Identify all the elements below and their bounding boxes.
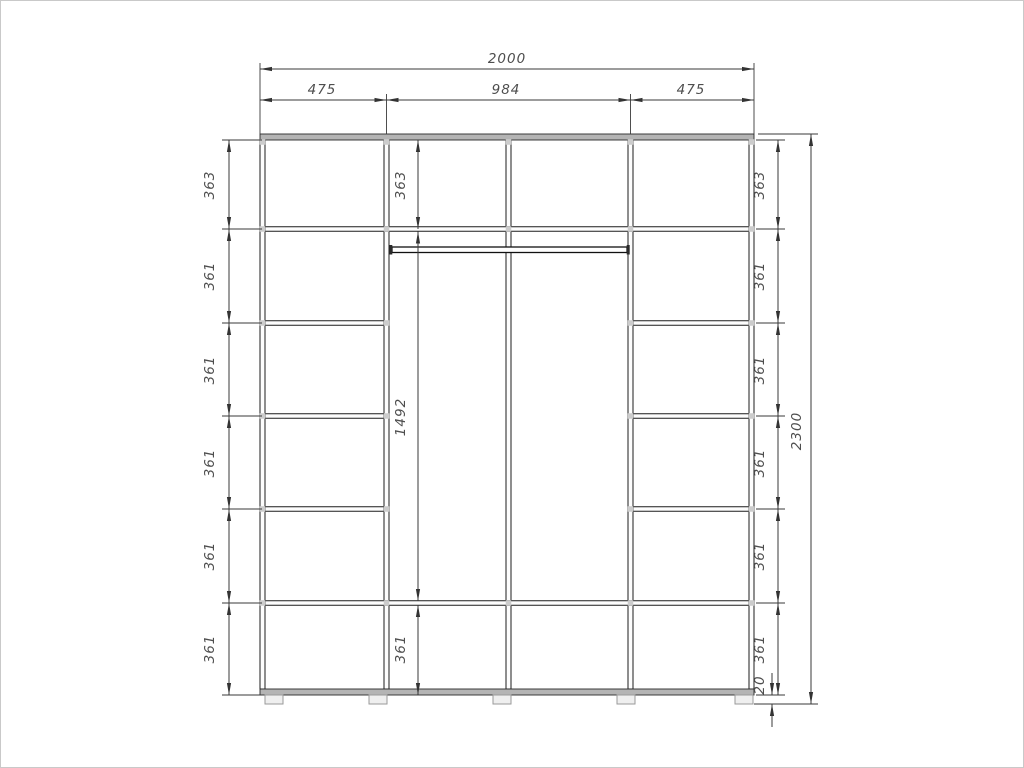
fitting-marker: [384, 506, 390, 512]
fitting-marker: [749, 320, 755, 326]
fitting-marker: [506, 226, 512, 232]
fitting-marker: [384, 320, 390, 326]
fitting-marker: [749, 226, 755, 232]
cabinet-body: [260, 134, 754, 704]
hanging-rod: [392, 247, 627, 253]
fitting-marker: [628, 413, 634, 419]
shelf-right-2: [633, 321, 749, 326]
dim-label-right-3: 361: [752, 356, 768, 385]
rod-bracket-right: [627, 245, 630, 255]
shelf-left-4: [265, 507, 384, 512]
extension-lines: [222, 63, 818, 704]
dim-label-left-2: 361: [202, 262, 218, 291]
fitting-marker: [506, 139, 512, 145]
dim-label-left-5: 361: [202, 542, 218, 571]
dim-label-right-2: 361: [752, 262, 768, 291]
fitting-marker: [506, 600, 512, 606]
dimension-lines: [229, 69, 811, 727]
fitting-marker: [384, 226, 390, 232]
dim-label-left-width: 475: [308, 82, 337, 98]
foot: [369, 695, 387, 704]
dim-label-left-3: 361: [202, 356, 218, 385]
wardrobe-dimension-drawing: 2000 475 984 475 363 361 361 361 361 361…: [0, 0, 1024, 768]
fitting-marker: [749, 139, 755, 145]
foot: [617, 695, 635, 704]
shelf-right-3: [633, 414, 749, 419]
dim-label-right-width: 475: [677, 82, 706, 98]
dimension-labels: 2000 475 984 475 363 361 361 361 361 361…: [202, 51, 805, 695]
dim-label-right-5: 361: [752, 542, 768, 571]
rod-bracket-left: [389, 245, 392, 255]
foot: [265, 695, 283, 704]
fitting-marker: [749, 600, 755, 606]
foot: [735, 695, 753, 704]
fitting-marker: [384, 600, 390, 606]
fitting-marker: [384, 139, 390, 145]
dim-label-right-1: 363: [752, 171, 768, 200]
dim-label-total-height: 2300: [789, 412, 805, 450]
dim-label-center-width: 984: [492, 82, 521, 98]
dim-label-left-6: 361: [202, 635, 218, 664]
fitting-marker: [749, 506, 755, 512]
bottom-panel: [260, 689, 754, 695]
partition-center: [506, 140, 511, 689]
fitting-marker: [628, 506, 634, 512]
dim-label-total-width: 2000: [488, 51, 526, 67]
shelf-left-2: [265, 321, 384, 326]
fitting-marker: [628, 320, 634, 326]
fitting-marker: [384, 413, 390, 419]
dim-label-center-top: 363: [393, 171, 409, 200]
shelf-left-3: [265, 414, 384, 419]
foot: [493, 695, 511, 704]
fitting-marker: [628, 226, 634, 232]
drawing-svg: 2000 475 984 475 363 361 361 361 361 361…: [1, 1, 1024, 768]
dim-label-plinth: 20: [752, 675, 768, 694]
dim-label-left-1: 363: [202, 171, 218, 200]
shelf-right-4: [633, 507, 749, 512]
dim-label-right-6: 361: [752, 635, 768, 664]
fitting-marker: [628, 139, 634, 145]
dim-label-right-4: 361: [752, 449, 768, 478]
fitting-marker: [628, 600, 634, 606]
dim-label-center-bottom: 361: [393, 635, 409, 664]
dim-label-center-middle: 1492: [393, 398, 409, 436]
dim-label-left-4: 361: [202, 449, 218, 478]
top-panel: [260, 134, 754, 140]
fitting-marker: [749, 413, 755, 419]
